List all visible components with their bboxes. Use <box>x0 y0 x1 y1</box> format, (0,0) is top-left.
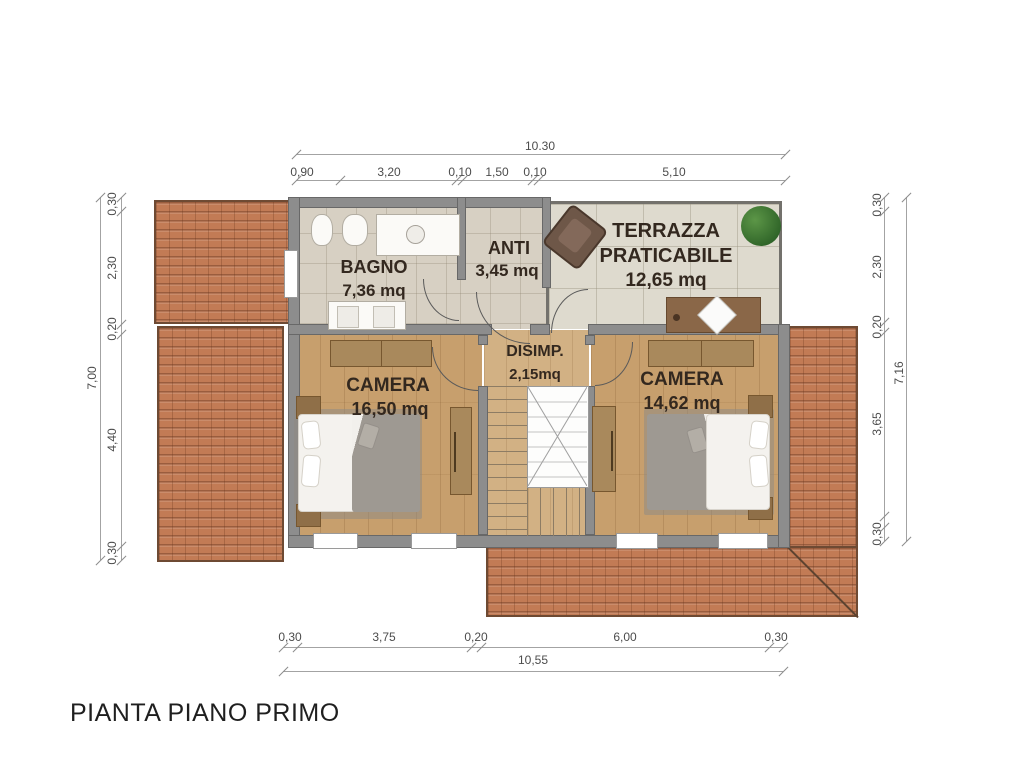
bidet <box>311 214 333 246</box>
stairwell <box>527 386 589 488</box>
dim-line-right-segments <box>884 197 885 541</box>
dim-top-seg: 0,90 <box>290 165 313 179</box>
dim-line-bottom-total <box>283 671 783 672</box>
label-disimp-area: 2,15mq <box>509 366 561 383</box>
dim-left-total: 7,00 <box>85 366 99 389</box>
roof-top-left <box>154 200 293 324</box>
bed-camera1 <box>298 414 356 512</box>
dim-left-seg: 2,30 <box>105 256 119 279</box>
plant <box>741 206 781 246</box>
dim-top-seg: 1,50 <box>485 165 508 179</box>
wardrobe-camera1 <box>330 340 432 367</box>
table-paper <box>697 295 737 335</box>
wall-middle-b <box>530 324 550 335</box>
label-bagno-area: 7,36 mq <box>342 281 405 301</box>
window-camera2-b <box>718 533 768 549</box>
wall-camera2-stub <box>585 335 595 345</box>
roof-bottom <box>486 546 858 617</box>
table-knob <box>673 314 680 321</box>
dresser-camera2 <box>592 406 616 492</box>
wardrobe-camera2 <box>648 340 754 367</box>
sink-counter <box>328 301 406 330</box>
wall-camera1-stub <box>478 335 488 345</box>
armchair-seat <box>557 217 593 254</box>
wardrobe-divider <box>701 341 702 366</box>
window-bagno <box>284 250 298 298</box>
dim-line-left-segments <box>121 197 122 560</box>
dim-bottom-total: 10,55 <box>518 653 548 667</box>
label-anti-area: 3,45 mq <box>475 261 538 281</box>
dim-right-seg: 3,65 <box>870 412 884 435</box>
label-camera2-name: CAMERA <box>640 369 723 391</box>
dresser-handle <box>454 432 456 472</box>
wall-bottom <box>288 535 790 548</box>
label-camera2-area: 14,62 mq <box>643 393 720 414</box>
pillow <box>301 454 322 487</box>
terrace-table <box>666 297 761 333</box>
dim-line-left-total <box>100 197 101 560</box>
dim-line-right-total <box>906 197 907 541</box>
dim-line-top-total <box>296 154 785 155</box>
dim-top-seg: 3,20 <box>377 165 400 179</box>
floor-plan-sheet: BAGNO 7,36 mq ANTI 3,45 mq TERRAZZA PRAT… <box>0 0 1024 768</box>
wall-top <box>288 197 548 208</box>
dim-line-top-segments <box>296 180 785 181</box>
shower <box>376 214 460 256</box>
roof-left <box>157 326 284 562</box>
duvet-camera1 <box>352 414 420 512</box>
stairwell-lines <box>528 387 587 486</box>
pillow <box>748 420 769 450</box>
stairs-treads-bottom <box>527 488 589 536</box>
window-camera1-a <box>313 533 358 549</box>
dim-line-bottom-segments <box>283 647 783 648</box>
wall-right <box>778 324 790 548</box>
dim-right-seg: 2,30 <box>870 255 884 278</box>
label-bagno-name: BAGNO <box>341 257 408 278</box>
label-terrazza-area: 12,65 mq <box>625 270 706 292</box>
dim-left-seg: 4,40 <box>105 428 119 451</box>
dim-bottom-seg: 0,30 <box>764 630 787 644</box>
page-title: PIANTA PIANO PRIMO <box>70 699 340 728</box>
dim-left-seg: 0,30 <box>105 541 119 564</box>
shower-head <box>406 225 425 244</box>
label-anti-name: ANTI <box>488 238 530 259</box>
label-camera1-name: CAMERA <box>346 375 429 397</box>
window-camera2-a <box>616 533 658 549</box>
dim-bottom-seg: 3,75 <box>372 630 395 644</box>
accent-pillow <box>357 422 381 450</box>
dim-right-total: 7,16 <box>892 361 906 384</box>
toilet <box>342 214 368 246</box>
label-camera1-area: 16,50 mq <box>351 399 428 420</box>
label-disimp-name: DISIMP. <box>506 343 564 361</box>
dresser-camera1 <box>450 407 472 495</box>
dresser-handle <box>611 431 613 471</box>
dim-top-seg: 5,10 <box>662 165 685 179</box>
dim-bottom-seg: 0,30 <box>278 630 301 644</box>
sink-basin <box>337 306 359 328</box>
bed-camera2 <box>706 414 770 510</box>
pillow <box>749 454 770 487</box>
dim-top-total: 10.30 <box>525 139 555 153</box>
stairs-treads-left <box>488 386 527 536</box>
window-camera1-b <box>411 533 457 549</box>
dim-left-seg: 0,30 <box>105 192 119 215</box>
label-terrazza-name1: TERRAZZA <box>612 220 720 243</box>
dim-bottom-seg: 6,00 <box>613 630 636 644</box>
wardrobe-divider <box>381 341 382 366</box>
pillow <box>301 420 322 450</box>
duvet-camera2 <box>647 414 713 510</box>
sink-basin <box>373 306 395 328</box>
wall-camera1-disimp <box>478 386 488 535</box>
label-terrazza-name2: PRATICABILE <box>600 245 733 268</box>
